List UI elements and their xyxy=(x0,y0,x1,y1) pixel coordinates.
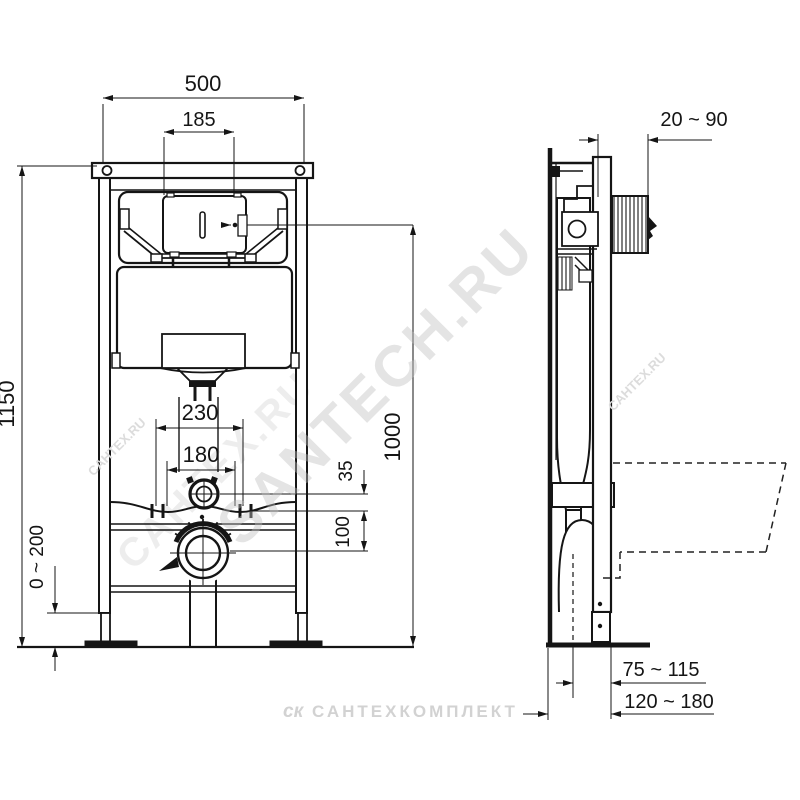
frame-rail-right xyxy=(296,178,307,613)
dim-foot-adjust: 0 ~ 200 xyxy=(27,525,101,671)
installation-frame-drawing: САНТЕХ.RU xyxy=(0,0,800,800)
dim-depth-range: 120 ~ 180 xyxy=(523,691,714,714)
dim-drain-offset-label: 100 xyxy=(333,516,354,548)
dim-wall-offset-label: 20 ~ 90 xyxy=(660,109,727,131)
dim-frame-width-label: 500 xyxy=(185,71,222,96)
cistern-opening xyxy=(162,334,245,368)
flush-bend-bellows xyxy=(612,196,648,253)
toilet-bowl-outline xyxy=(603,463,786,578)
dim-drain-front-label: 75 ~ 115 xyxy=(623,659,700,681)
flush-button-slot xyxy=(200,212,205,238)
dim-panel-width-label: 185 xyxy=(182,109,215,131)
dim-foot-adjust-label: 0 ~ 200 xyxy=(27,525,48,589)
dim-fixing-inner-label: 180 xyxy=(183,442,220,467)
dim-frame-height-label: 1150 xyxy=(0,380,19,427)
dim-frame-height: 1150 xyxy=(0,166,97,647)
wall-bracket-hole-right xyxy=(296,166,305,175)
wall-bracket-hole-left xyxy=(103,166,112,175)
watermark-side: САНТЕХ.RU xyxy=(605,350,669,414)
frame-rail-left xyxy=(99,178,110,613)
technical-drawing-page: САНТЕХ.RU xyxy=(0,0,800,800)
watermark-footer-text: САНТЕХКОМПЛЕКТ xyxy=(312,702,518,721)
fill-valve xyxy=(569,221,586,238)
flush-funnel xyxy=(177,368,228,381)
access-panel xyxy=(119,192,287,270)
adjustable-foot-left xyxy=(101,613,110,642)
dim-fixing-outer-label: 230 xyxy=(182,400,219,425)
dim-depth-range-label: 120 ~ 180 xyxy=(624,691,714,713)
side-view xyxy=(546,148,786,645)
inlet-hatch xyxy=(556,257,572,290)
watermark-footer-logo: ск xyxy=(283,701,305,722)
frame-top-bar xyxy=(92,163,313,178)
dim-panel-width: 185 xyxy=(164,109,234,195)
adjustable-foot-right xyxy=(298,613,307,642)
watermark-left: САНТЕХ.RU xyxy=(85,415,149,479)
